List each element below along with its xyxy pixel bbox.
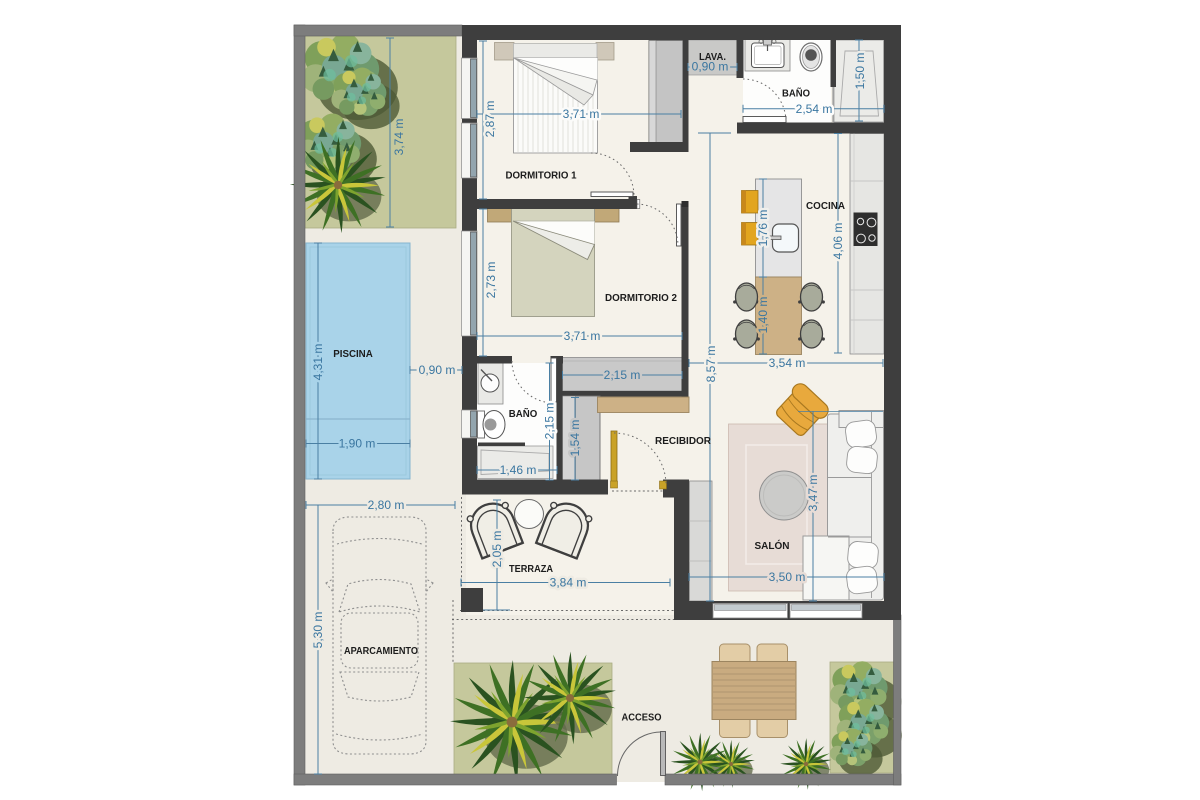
svg-text:8,57 m: 8,57 m (704, 346, 718, 383)
svg-text:3,71 m: 3,71 m (564, 329, 601, 343)
svg-text:4,31 m: 4,31 m (311, 344, 325, 381)
svg-text:APARCAMIENTO: APARCAMIENTO (344, 645, 418, 657)
svg-text:2,15 m: 2,15 m (543, 403, 557, 440)
svg-text:4,06 m: 4,06 m (831, 223, 845, 260)
svg-text:3,47 m: 3,47 m (806, 475, 820, 512)
svg-text:2,73 m: 2,73 m (484, 262, 498, 299)
svg-text:BAÑO: BAÑO (509, 407, 538, 420)
svg-text:2,15 m: 2,15 m (604, 368, 641, 382)
svg-text:DORMITORIO 1: DORMITORIO 1 (506, 170, 577, 182)
svg-text:0,90 m: 0,90 m (419, 363, 456, 377)
svg-text:LAVA.: LAVA. (699, 51, 726, 63)
svg-text:1,76 m: 1,76 m (756, 210, 770, 247)
svg-text:1,90 m: 1,90 m (339, 437, 376, 451)
svg-text:1,50 m: 1,50 m (853, 53, 867, 90)
svg-text:ACCESO: ACCESO (622, 712, 662, 724)
svg-text:3,74 m: 3,74 m (392, 119, 406, 156)
svg-text:3,54 m: 3,54 m (769, 356, 806, 370)
svg-text:3,50 m: 3,50 m (769, 570, 806, 584)
svg-text:BAÑO: BAÑO (782, 87, 810, 100)
svg-text:2,05 m: 2,05 m (490, 531, 504, 568)
svg-text:5,30 m: 5,30 m (311, 612, 325, 649)
svg-text:3,71 m: 3,71 m (563, 107, 600, 121)
svg-text:1,46 m: 1,46 m (500, 463, 537, 477)
svg-text:TERRAZA: TERRAZA (509, 563, 553, 575)
svg-text:SALÓN: SALÓN (755, 539, 790, 552)
svg-text:PISCINA: PISCINA (333, 348, 373, 360)
svg-text:DORMITORIO 2: DORMITORIO 2 (605, 292, 677, 304)
svg-text:2,80 m: 2,80 m (368, 498, 405, 512)
svg-text:1,54 m: 1,54 m (568, 420, 582, 457)
svg-text:1,40 m: 1,40 m (756, 297, 770, 334)
svg-text:3,84 m: 3,84 m (550, 576, 587, 590)
svg-text:2,54 m: 2,54 m (796, 102, 833, 116)
svg-text:COCINA: COCINA (806, 200, 845, 212)
svg-text:RECIBIDOR: RECIBIDOR (655, 435, 711, 447)
svg-text:2,87 m: 2,87 m (483, 101, 497, 138)
